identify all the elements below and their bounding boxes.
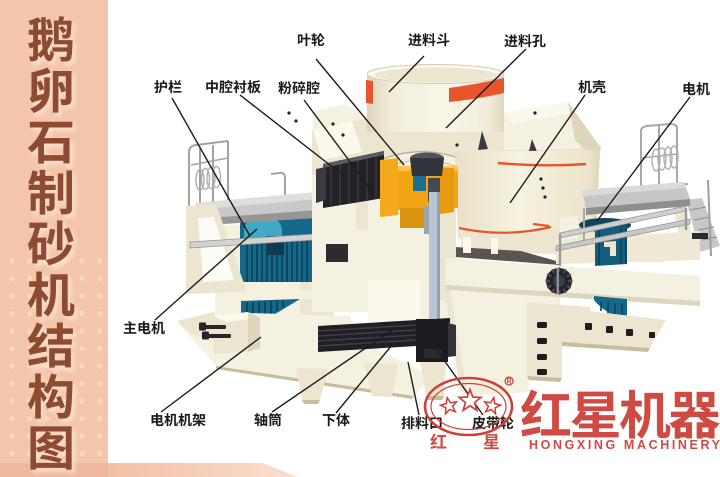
svg-text:HONGXING MACHINERY: HONGXING MACHINERY bbox=[529, 438, 720, 452]
